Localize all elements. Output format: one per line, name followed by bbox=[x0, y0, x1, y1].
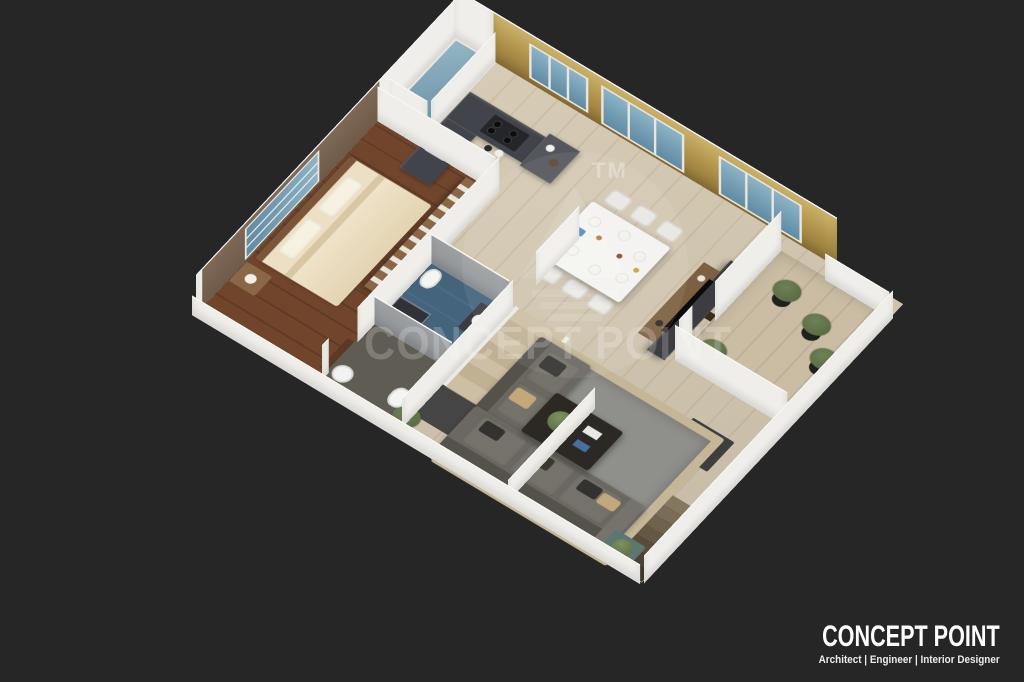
plate bbox=[617, 229, 632, 241]
food-item bbox=[632, 267, 640, 274]
floor-plan bbox=[194, 35, 903, 582]
plate bbox=[632, 250, 647, 262]
brand-tagline: Architect | Engineer | Interior Designer bbox=[778, 654, 1000, 666]
burner bbox=[493, 120, 503, 128]
burner bbox=[503, 136, 513, 144]
brand-name: CONCEPT POINT bbox=[822, 621, 1000, 653]
brand-block: CONCEPT POINT Architect | Engineer | Int… bbox=[753, 621, 1000, 667]
burner bbox=[487, 127, 497, 135]
food-item bbox=[595, 234, 603, 241]
book bbox=[572, 439, 590, 452]
table-lamp bbox=[242, 272, 259, 285]
plate bbox=[587, 264, 602, 276]
food-item bbox=[615, 253, 623, 260]
cabinet-deco bbox=[544, 143, 557, 153]
render-canvas: TM CONCEPT POINT CONCEPT POINT Architect… bbox=[0, 0, 1024, 682]
cabinet-deco bbox=[547, 157, 561, 168]
burner bbox=[509, 130, 519, 138]
plate bbox=[614, 272, 629, 284]
plate bbox=[587, 216, 602, 228]
book bbox=[582, 425, 602, 440]
